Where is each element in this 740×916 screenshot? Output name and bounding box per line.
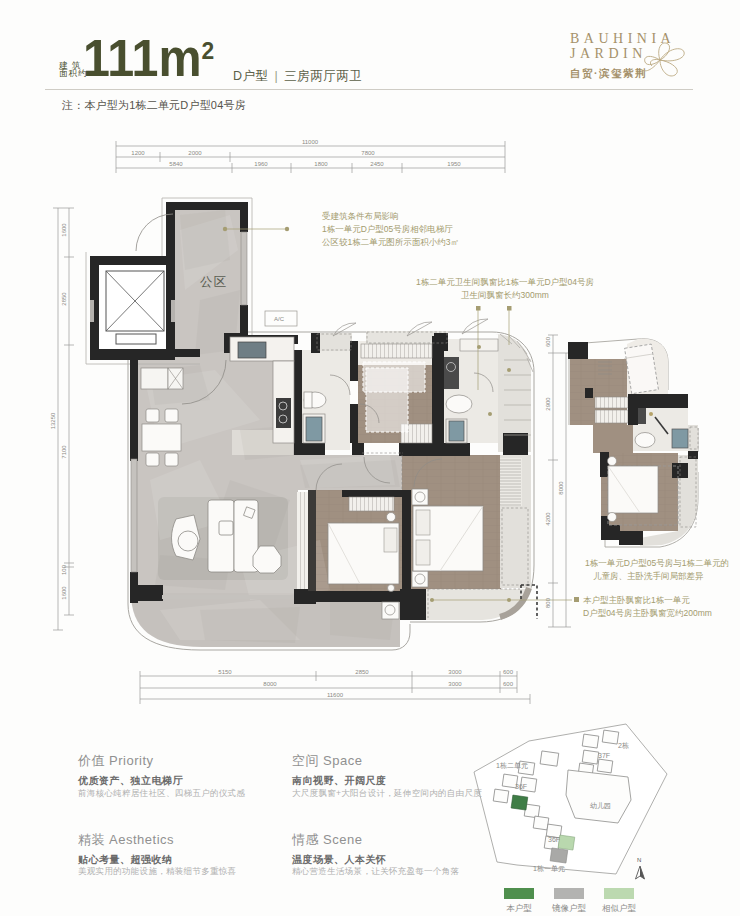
svg-text:1栋二单元: 1栋二单元	[496, 762, 528, 770]
svg-text:600: 600	[503, 681, 514, 687]
svg-text:800: 800	[545, 597, 551, 608]
svg-text:1栋一单元: 1栋一单元	[533, 865, 565, 873]
svg-text:卫生间飘窗长约300mm: 卫生间飘窗长约300mm	[461, 290, 549, 300]
svg-text:本户型: 本户型	[506, 903, 532, 913]
svg-text:1栋二单元卫生间飘窗比1栋一单元D户型04号房: 1栋二单元卫生间飘窗比1栋一单元D户型04号房	[416, 277, 594, 287]
svg-text:13250: 13250	[50, 412, 56, 429]
svg-text:本户型主卧飘窗比1栋一单元: 本户型主卧飘窗比1栋一单元	[583, 595, 690, 605]
svg-text:1800: 1800	[314, 161, 328, 167]
svg-text:2850: 2850	[355, 669, 369, 675]
svg-text:D户型04号房主卧飘窗宽约200mm: D户型04号房主卧飘窗宽约200mm	[583, 608, 712, 618]
svg-text:3000: 3000	[448, 681, 462, 687]
svg-text:100: 100	[61, 564, 67, 575]
svg-text:36F: 36F	[548, 836, 560, 843]
svg-text:5840: 5840	[169, 161, 183, 167]
svg-text:1栋一单元D户型05号房与1栋二单元的: 1栋一单元D户型05号房与1栋二单元的	[585, 558, 729, 568]
svg-text:37F: 37F	[598, 752, 610, 759]
svg-text:2450: 2450	[370, 161, 384, 167]
svg-text:1200: 1200	[131, 150, 145, 156]
svg-text:1600: 1600	[61, 223, 67, 237]
svg-text:11000: 11000	[302, 139, 319, 145]
svg-text:公区较1栋二单元图所示面积小约3㎡: 公区较1栋二单元图所示面积小约3㎡	[322, 237, 459, 247]
svg-text:2850: 2850	[61, 292, 67, 306]
svg-text:7100: 7100	[61, 445, 67, 459]
svg-text:3000: 3000	[448, 669, 462, 675]
svg-text:2000: 2000	[188, 150, 202, 156]
svg-text:36F: 36F	[515, 783, 527, 790]
svg-text:1950: 1950	[447, 161, 461, 167]
svg-text:7800: 7800	[361, 150, 375, 156]
svg-text:600: 600	[503, 669, 514, 675]
svg-text:相似户型: 相似户型	[602, 903, 637, 913]
svg-text:镜像户型: 镜像户型	[551, 903, 587, 913]
svg-text:600: 600	[545, 336, 551, 347]
svg-text:1600: 1600	[61, 586, 67, 600]
svg-text:儿童房、主卧洗手间局部差异: 儿童房、主卧洗手间局部差异	[593, 571, 704, 581]
svg-text:8000: 8000	[263, 681, 277, 687]
svg-text:N: N	[637, 857, 641, 863]
svg-text:1960: 1960	[254, 161, 268, 167]
svg-text:1栋一单元D户型05号房相邻电梯厅: 1栋一单元D户型05号房相邻电梯厅	[322, 224, 453, 234]
svg-text:11600: 11600	[327, 692, 344, 698]
svg-text:2900: 2900	[545, 397, 551, 411]
svg-text:2栋: 2栋	[618, 742, 629, 750]
svg-text:4200: 4200	[545, 512, 551, 526]
svg-text:幼儿园: 幼儿园	[590, 802, 611, 810]
svg-text:A/C: A/C	[274, 316, 285, 322]
svg-text:8000: 8000	[558, 481, 564, 495]
svg-text:受建筑条件布局影响: 受建筑条件布局影响	[322, 211, 399, 221]
svg-text:公区: 公区	[200, 275, 227, 289]
svg-text:5150: 5150	[218, 669, 232, 675]
